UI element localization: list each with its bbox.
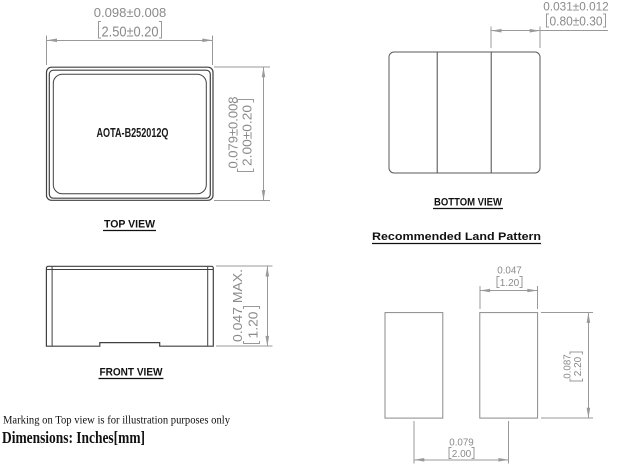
svg-text:FRONT VIEW: FRONT VIEW <box>100 367 164 379</box>
svg-text:2.00: 2.00 <box>452 448 472 460</box>
svg-text:2.50±0.20: 2.50±0.20 <box>102 24 159 41</box>
svg-text:1.20: 1.20 <box>246 312 261 339</box>
svg-text:BOTTOM VIEW: BOTTOM VIEW <box>434 197 503 209</box>
svg-text:AOTA-B252012Q: AOTA-B252012Q <box>97 126 169 140</box>
svg-text:1.20: 1.20 <box>500 277 520 289</box>
svg-text:0.079±0.008: 0.079±0.008 <box>226 97 241 169</box>
svg-text:0.031±0.012: 0.031±0.012 <box>543 0 609 14</box>
svg-text:0.047: 0.047 <box>497 265 522 277</box>
svg-text:2.00±0.20: 2.00±0.20 <box>240 105 255 166</box>
svg-text:Dimensions: Inches[mm]: Dimensions: Inches[mm] <box>2 428 145 447</box>
svg-text:0.079: 0.079 <box>449 436 474 448</box>
svg-text:Marking on Top view is for ill: Marking on Top view is for illustration … <box>3 413 230 427</box>
svg-text:0.80±0.30: 0.80±0.30 <box>550 14 603 28</box>
svg-text:Recommended Land Pattern: Recommended Land Pattern <box>372 231 541 243</box>
svg-text:2.20: 2.20 <box>572 357 584 377</box>
svg-text:0.047 MAX.: 0.047 MAX. <box>230 269 245 342</box>
svg-text:TOP VIEW: TOP VIEW <box>104 219 156 231</box>
svg-text:0.098±0.008: 0.098±0.008 <box>94 5 167 20</box>
